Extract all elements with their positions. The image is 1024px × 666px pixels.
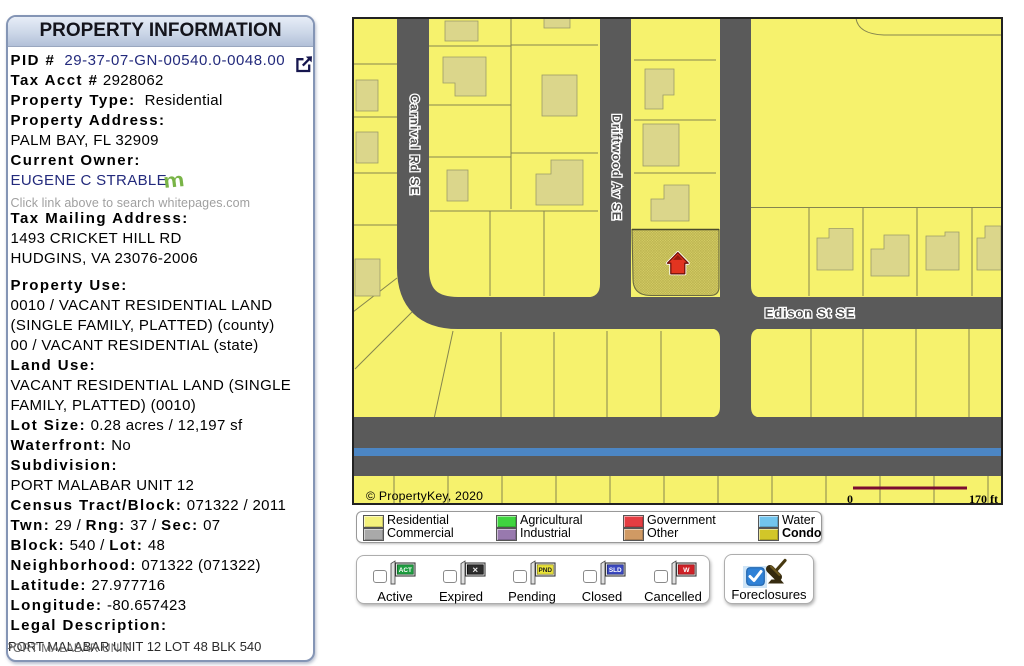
svg-text:© PropertyKey, 2020: © PropertyKey, 2020 (366, 489, 483, 503)
svg-text:✕: ✕ (472, 565, 478, 574)
svg-text:ACT: ACT (399, 567, 412, 574)
svg-text:SLD: SLD (609, 567, 622, 574)
svg-text:W: W (683, 567, 690, 574)
svg-text:Edison St SE: Edison St SE (765, 306, 856, 321)
svg-text:Driftwood Av SE: Driftwood Av SE (609, 114, 623, 221)
svg-text:Carnival Rd SE: Carnival Rd SE (407, 94, 421, 195)
svg-text:PND: PND (539, 567, 553, 574)
